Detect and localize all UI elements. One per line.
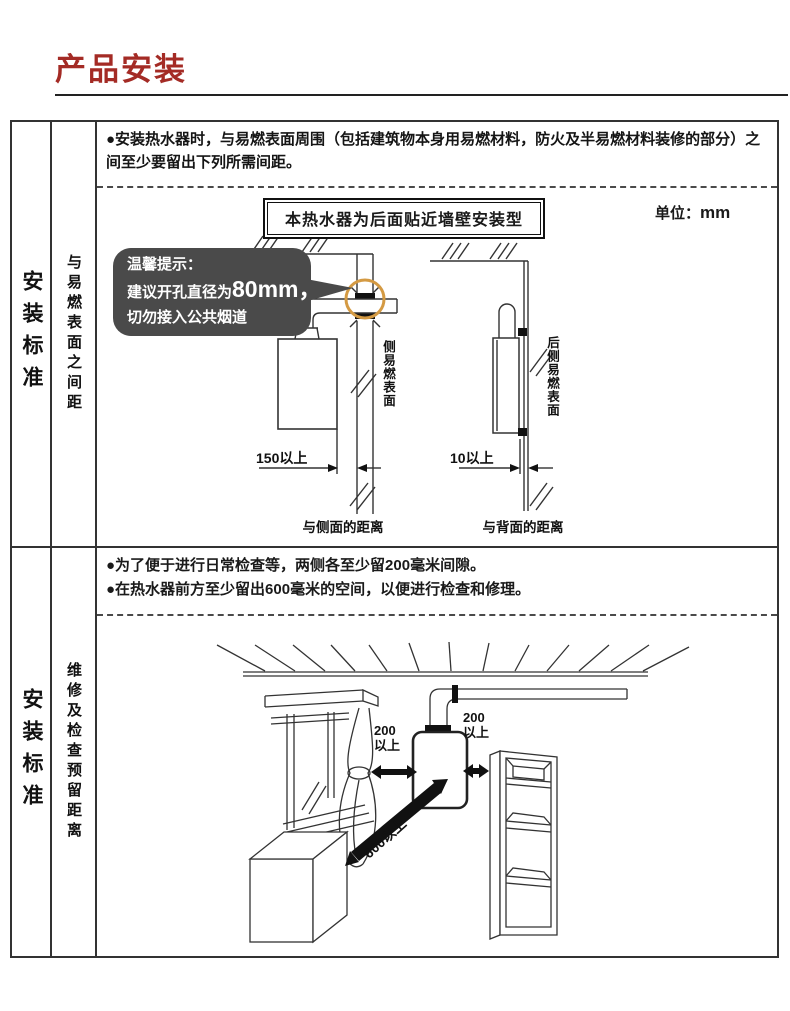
row2-category-label: 安装标准 — [16, 688, 46, 816]
row2-subcategory-cell: 维修及检查预留距离 — [52, 548, 97, 956]
table-row-flammable-clearance: 安装标准 与易燃表面之间距 ●安装热水器时，与易燃表面周围（包括建筑物本身用易燃… — [12, 122, 777, 546]
rear-wall-label: 后侧易燃表面 — [543, 336, 562, 417]
left-side-gap-dimension: 200以上 — [374, 724, 404, 754]
rear-side-clearance-drawing — [430, 243, 553, 511]
row1-category-cell: 安装标准 — [12, 122, 52, 546]
right-side-gap-dimension: 200以上 — [463, 711, 493, 741]
page-title: 产品安装 — [55, 44, 187, 89]
row1-category-label: 安装标准 — [16, 270, 46, 398]
row2-category-cell: 安装标准 — [12, 548, 52, 956]
title-underline — [55, 94, 788, 96]
side-clearance-caption: 与侧面的距离 — [293, 516, 393, 536]
rear-clearance-caption: 与背面的距离 — [473, 516, 573, 536]
side-clearance-dimension: 150以上 — [256, 448, 307, 468]
side-wall-label: 侧易燃表面 — [379, 340, 398, 408]
room-scene-drawing — [217, 642, 689, 942]
tip-diameter-value: 80mm， — [232, 276, 321, 302]
tip-line1: 温馨提示： — [127, 255, 311, 275]
row2-content-cell: ●为了便于进行日常检查等，两侧各至少留200毫米间隙。 ●在热水器前方至少留出6… — [97, 548, 777, 956]
diagram-header-text: 本热水器为后面贴近墙壁安装型 — [267, 202, 541, 235]
manual-page: 产品安装 安装标准 与易燃表面之间距 ●安装热水器时，与易燃表面周围（包括建筑物… — [0, 0, 790, 1011]
tip-bubble: 温馨提示： 建议开孔直径为80mm， 切勿接入公共烟道 — [113, 248, 311, 336]
row1-content-cell: ●安装热水器时，与易燃表面周围（包括建筑物本身用易燃材料，防火及半易燃材料装修的… — [97, 122, 777, 546]
tip-line3: 切勿接入公共烟道 — [127, 307, 311, 329]
tip-line2: 建议开孔直径为80mm， — [127, 275, 311, 307]
row2-subcategory-label: 维修及检查预留距离 — [63, 662, 84, 842]
install-standard-table: 安装标准 与易燃表面之间距 ●安装热水器时，与易燃表面周围（包括建筑物本身用易燃… — [10, 120, 779, 958]
unit-note: 单位：mm — [655, 202, 730, 223]
unit-value: mm — [700, 203, 730, 222]
table-row-service-clearance: 安装标准 维修及检查预留距离 ●为了便于进行日常检查等，两侧各至少留200毫米间… — [12, 546, 777, 956]
rear-clearance-dimension: 10以上 — [450, 448, 494, 468]
service-clearance-diagram-art — [97, 548, 777, 956]
row1-subcategory-label: 与易燃表面之间距 — [63, 254, 84, 414]
unit-label: 单位： — [655, 205, 700, 222]
row1-subcategory-cell: 与易燃表面之间距 — [52, 122, 97, 546]
diagram-header-box: 本热水器为后面贴近墙壁安装型 — [263, 198, 545, 239]
